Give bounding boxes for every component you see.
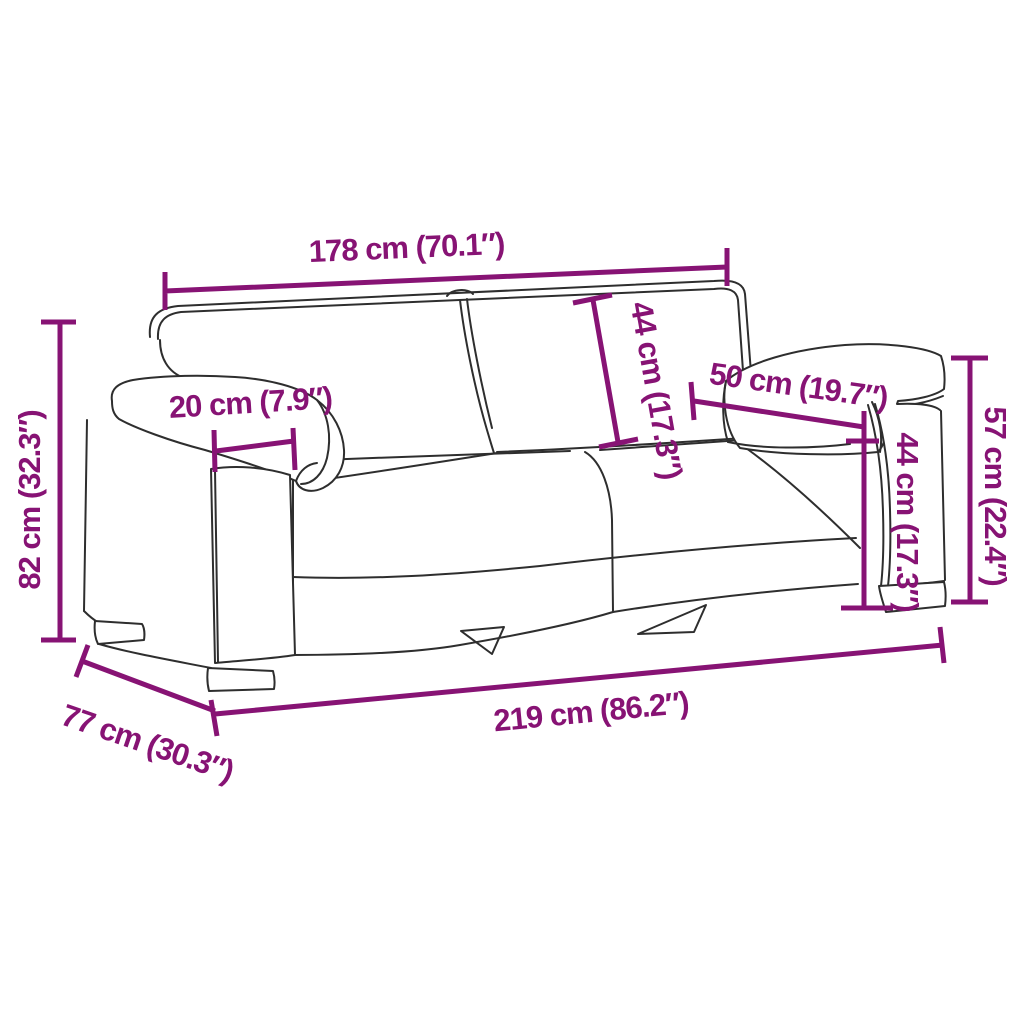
- dim-armrest-height: 57 cm (22.4″): [951, 358, 1013, 602]
- back-left-corner: [160, 340, 184, 378]
- back-cushion-seam: [460, 300, 494, 453]
- sofa-seat: [293, 432, 861, 656]
- sofa-left-side: [84, 420, 213, 668]
- back-left-leg: [95, 621, 145, 644]
- dim-label-inner-width: 178 cm (70.1″): [308, 226, 505, 269]
- dim-label-overall-width: 219 cm (86.2″): [492, 685, 690, 739]
- left-arm-panel: [211, 467, 295, 663]
- sofa-sketch: [84, 281, 946, 691]
- dim-inner-width: 178 cm (70.1″): [165, 226, 727, 310]
- dim-label-seat-height: 44 cm (17.3″): [890, 432, 925, 611]
- diagram-canvas: 178 cm (70.1″) 44 cm (17.3″) 50 cm (19.7…: [0, 0, 1024, 1024]
- dim-label-armrest-height: 57 cm (22.4″): [978, 406, 1013, 585]
- dimension-diagram: 178 cm (70.1″) 44 cm (17.3″) 50 cm (19.7…: [0, 0, 1024, 1024]
- front-left-leg: [207, 668, 274, 691]
- dim-overall-height: 82 cm (32.3″): [12, 322, 76, 640]
- dim-label-overall-height: 82 cm (32.3″): [12, 410, 47, 589]
